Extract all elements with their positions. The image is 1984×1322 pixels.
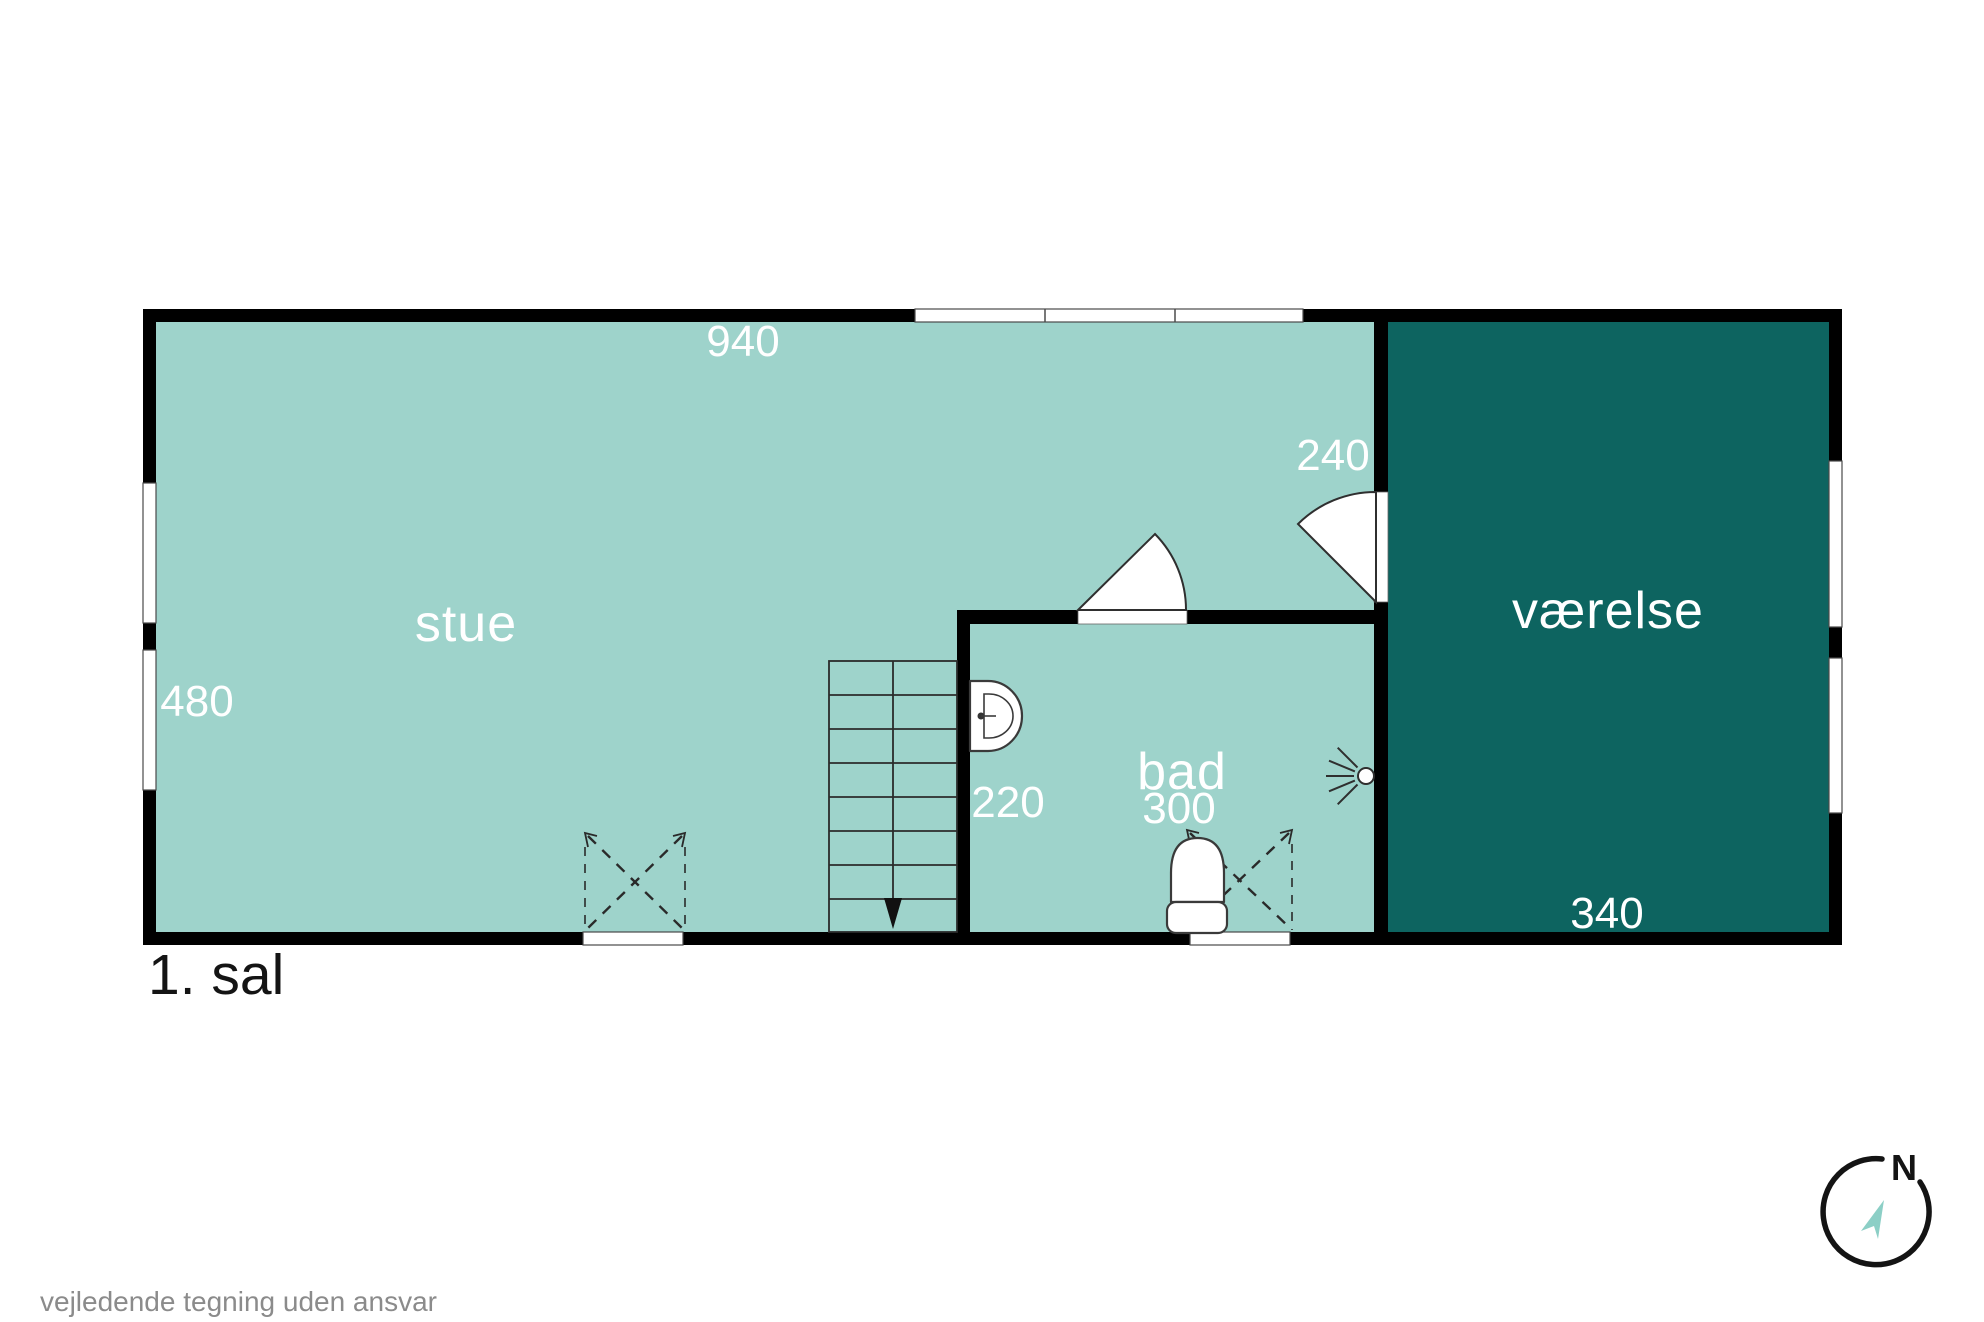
- wall-left: [143, 309, 156, 945]
- room-label-stue: stue: [415, 595, 517, 653]
- wall-bad-top-right: [1187, 610, 1374, 624]
- window-bottom-stue: [583, 932, 683, 945]
- wall-bad-top-left: [957, 610, 1078, 624]
- wall-vaerelse-upper: [1374, 322, 1388, 492]
- dim-label-940: 940: [706, 317, 779, 366]
- lamp-bulb: [1358, 768, 1374, 784]
- wall-bad-left: [957, 610, 970, 945]
- window-left-2: [143, 650, 156, 790]
- room-label-vaerelse: værelse: [1512, 582, 1704, 640]
- wall-vaerelse-lower: [1374, 602, 1388, 932]
- compass-north-label: N: [1891, 1147, 1917, 1188]
- window-left-1: [143, 483, 156, 623]
- door-opening-bad: [1078, 610, 1187, 624]
- disclaimer-text: vejledende tegning uden ansvar: [40, 1286, 437, 1317]
- dim-label-340: 340: [1570, 889, 1643, 938]
- dim-label-480: 480: [160, 677, 233, 726]
- dim-label-220: 220: [971, 778, 1044, 827]
- toilet-icon: [1167, 838, 1227, 933]
- toilet-tank: [1167, 902, 1227, 933]
- dim-label-300: 300: [1142, 784, 1215, 833]
- floor-plan-page: N stue bad værelse 940 480 240 220 300 3…: [0, 0, 1984, 1322]
- window-top: [915, 309, 1303, 322]
- toilet-bowl: [1171, 838, 1224, 902]
- window-right-2: [1829, 658, 1842, 813]
- compass: N: [1823, 1147, 1929, 1265]
- floor-plan-svg: N stue bad værelse 940 480 240 220 300 3…: [0, 0, 1984, 1322]
- compass-arrow-icon: [1861, 1200, 1884, 1239]
- window-right-1: [1829, 461, 1842, 627]
- dim-label-240: 240: [1296, 431, 1369, 480]
- floor-title: 1. sal: [148, 943, 284, 1007]
